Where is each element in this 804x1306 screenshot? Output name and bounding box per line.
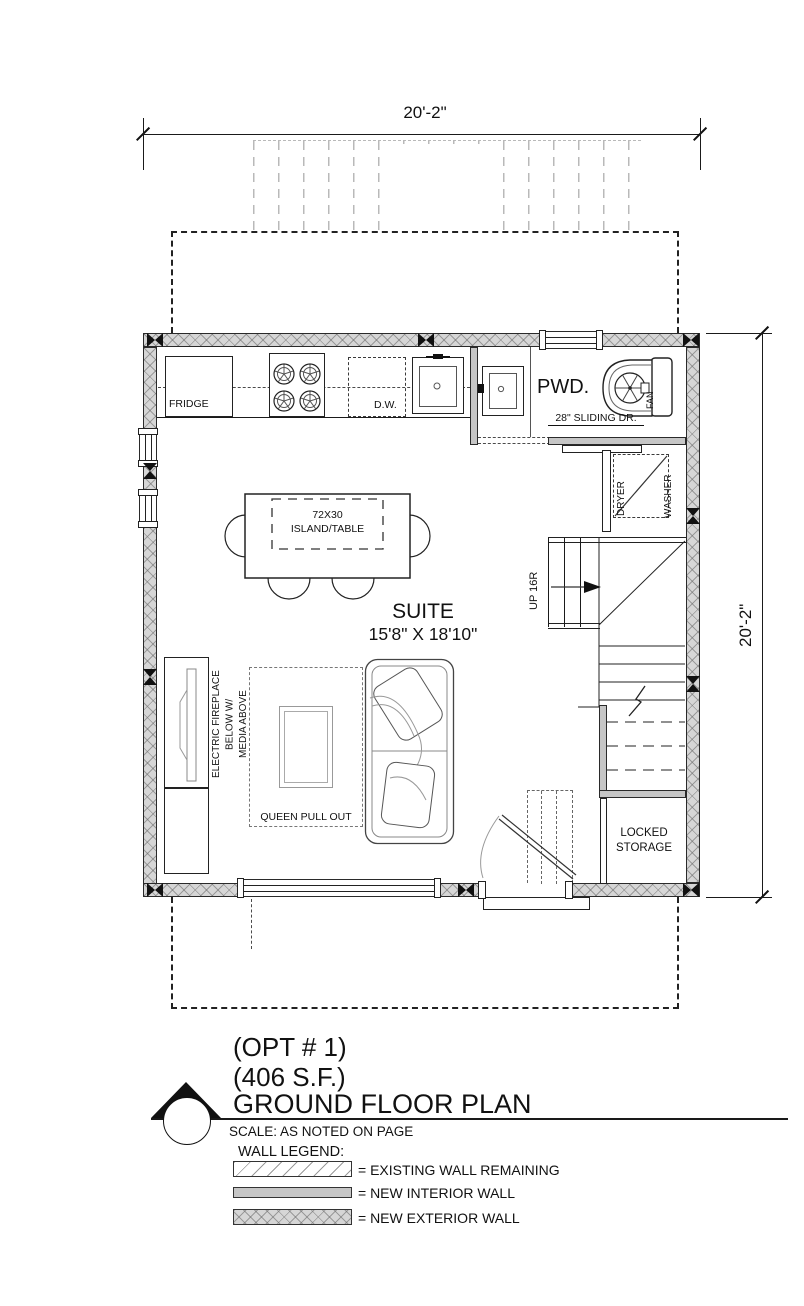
suite-dimensions: 15'8" X 18'10" [343,624,503,645]
plan-scale: SCALE: AS NOTED ON PAGE [229,1124,413,1139]
legend-label-interior-wall: = NEW INTERIOR WALL [358,1185,515,1201]
stair-wall-vertical [599,705,607,798]
wall-joint-marker [458,883,474,897]
entry-step [483,897,590,910]
floor-plan-sheet: 20'-2" 20'-2" [0,0,804,1306]
overhead-stair-line [556,791,557,884]
fireplace-line1: ELECTRIC FIREPLACE [210,645,224,803]
right-dimension-text: 20'-2" [736,575,756,647]
sliding-door-label: 28" SLIDING DR. [548,412,644,426]
dryer-label: DRYER [616,458,627,516]
legend-label-existing-wall: = EXISTING WALL REMAINING [358,1162,560,1178]
suite-name: SUITE [343,600,503,624]
storage-door-frame [600,798,607,884]
window-glass [243,885,435,892]
window-glass [545,337,597,344]
vanity-edge [530,347,531,437]
toilet-fan-icon [603,358,672,416]
dim-extension-line [143,118,144,170]
fireplace-line3: MEDIA ABOVE [237,645,251,803]
wall-joint-marker [683,333,699,347]
dim-extension-line [706,333,772,334]
washer-label: WASHER [663,456,674,518]
pwd-label: PWD. [537,376,589,399]
overhead-stair-line [541,791,542,884]
range-stove [269,353,325,417]
plan-title: GROUND FLOOR PLAN [233,1089,532,1120]
window-glass [145,495,152,522]
door-jamb [478,881,486,899]
stair-up-arrow-icon [551,581,601,593]
left-window-upper [139,429,157,466]
lower-overhang-outline [171,897,679,1009]
storage-north-wall [599,790,686,798]
plan-option: (OPT # 1) [233,1032,347,1063]
window-centerline [251,899,252,949]
fireplace-line2: BELOW W/ [224,645,238,803]
window-jamb [539,330,546,350]
pwd-south-wall [548,437,686,445]
fireplace-label: ELECTRIC FIREPLACE BELOW W/ MEDIA ABOVE [210,645,254,803]
fan-label: FAN [645,369,655,409]
coffee-table-inner [284,711,328,783]
right-dimension-line [762,333,763,897]
window-jamb [138,521,158,528]
kitchen-pwd-divider-wall [470,347,478,445]
exterior-wall-right [686,347,700,883]
legend-swatch-existing-wall [233,1161,352,1177]
dim-extension-line [700,118,701,170]
wall-joint-marker [143,669,157,685]
stair-top-edge [548,537,686,543]
window-jamb [138,489,158,496]
overhead-stair-outline [527,790,573,883]
window-jamb [596,330,603,350]
deck-gap [397,144,491,232]
pwd-window [540,331,602,349]
dim-extension-line [706,897,772,898]
wall-joint-marker [147,883,163,897]
door-jamb [565,881,573,899]
locked-storage-label: LOCKED STORAGE [611,826,677,856]
stair-edge [548,538,549,627]
dishwasher-label: D.W. [374,399,397,411]
island-size: 72X30 [272,509,383,523]
wall-joint-marker [683,883,699,897]
fireplace-cabinet-lower [164,788,209,874]
queen-pullout-label: QUEEN PULL OUT [252,811,360,823]
window-glass [145,434,152,461]
wall-legend-heading: WALL LEGEND: [238,1144,344,1160]
top-dimension-text: 20'-2" [365,103,485,123]
wall-joint-marker [143,463,157,479]
laundry-door [602,450,611,532]
sofa [366,660,454,844]
counter-edge [157,417,470,418]
legend-label-exterior-wall: = NEW EXTERIOR WALL [358,1210,520,1226]
wall-joint-marker [418,333,434,347]
fireplace-cabinet-upper [164,657,209,788]
window-jamb [434,878,441,898]
legend-swatch-interior-wall [233,1187,352,1198]
bottom-window [238,879,440,897]
sliding-door-opening [478,437,550,438]
stair-linework [578,538,685,770]
window-jamb [138,428,158,435]
exterior-wall-left-lower [143,527,157,897]
wall-joint-marker [686,676,700,692]
suite-title: SUITE 15'8" X 18'10" [343,600,503,645]
window-jamb [237,878,244,898]
stair-bottom-edge [548,623,600,629]
stair-riser [580,538,581,627]
sliding-door-opening [478,443,550,444]
exterior-wall-left-upper [143,347,157,429]
kitchen-sink-basin [419,366,457,407]
wall-joint-marker [686,508,700,524]
upper-floor-outline [171,231,679,333]
wall-joint-marker [147,333,163,347]
exterior-wall-bottom-3 [572,883,700,897]
legend-swatch-exterior-wall [233,1209,352,1225]
exterior-wall-top-left [143,333,540,347]
fridge-label: FRIDGE [169,398,209,410]
stair-direction-label: UP 16R [528,556,540,610]
island-label: 72X30 ISLAND/TABLE [272,509,383,536]
stair-riser [564,538,565,627]
island-name: ISLAND/TABLE [272,523,383,537]
top-dimension-line [143,134,701,135]
title-marker-circle-icon [163,1097,211,1145]
left-window-lower [139,490,157,527]
pwd-sink-basin [489,373,517,409]
